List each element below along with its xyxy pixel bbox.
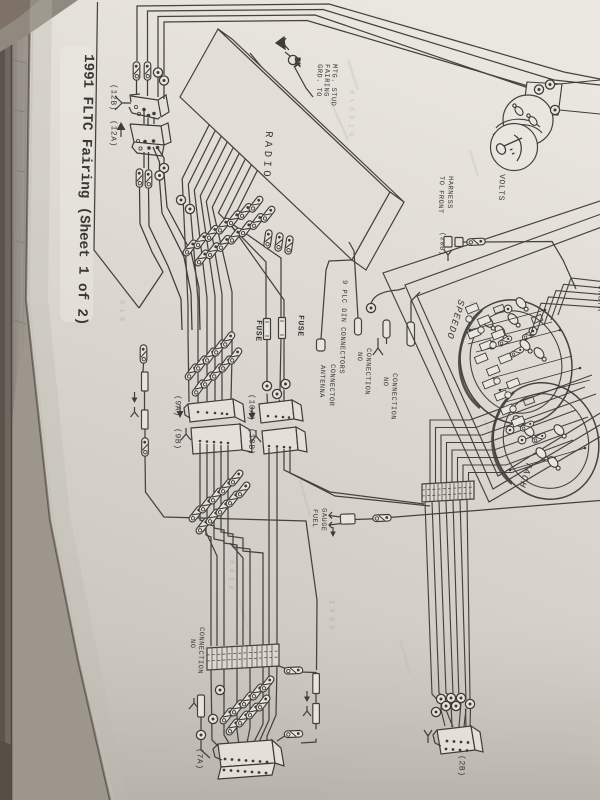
svg-text:FUSE: FUSE: [295, 315, 305, 337]
svg-text:MTG. STUD: MTG. STUD: [329, 64, 338, 107]
svg-text:CONNECTION: CONNECTION: [195, 627, 205, 674]
svg-text:NO: NO: [381, 377, 389, 387]
svg-text:RADIO: RADIO: [259, 131, 274, 181]
svg-text:ANTENNA: ANTENNA: [317, 365, 326, 398]
svg-text:(10B): (10B): [246, 428, 256, 455]
svg-text:BK: BK: [292, 57, 300, 67]
svg-text:8 1 8: 8 1 8: [117, 300, 125, 321]
svg-text:CONNECTOR: CONNECTOR: [327, 364, 336, 407]
svg-text:CONNECTION: CONNECTION: [388, 373, 398, 420]
svg-text:VOLTS: VOLTS: [496, 174, 506, 201]
svg-text:INSTR: INSTR: [595, 285, 600, 312]
svg-text:TO FRONT: TO FRONT: [436, 176, 445, 214]
svg-text:8 1 8 8 1 8: 8 1 8 8 1 8: [346, 90, 355, 136]
svg-text:(10A): (10A): [246, 394, 256, 421]
svg-text:8 8 1 8: 8 8 1 8: [226, 560, 235, 590]
svg-text:NO: NO: [188, 639, 196, 649]
svg-text:(12A): (12A): [108, 120, 118, 147]
svg-text:9 PLC DIN CONNECTORS: 9 PLC DIN CONNECTORS: [337, 280, 348, 374]
svg-text:FUSE: FUSE: [253, 320, 263, 342]
svg-text:(2B): (2B): [456, 755, 466, 777]
svg-text:(12B): (12B): [108, 84, 118, 111]
svg-text:GAUGE: GAUGE: [319, 508, 328, 532]
svg-text:1 8 8 8: 1 8 8 8: [326, 600, 335, 630]
svg-text:FUEL: FUEL: [310, 509, 319, 528]
svg-text:CONNECTION: CONNECTION: [362, 348, 372, 395]
svg-text:HARNESS: HARNESS: [445, 176, 454, 209]
svg-text:NO: NO: [355, 352, 363, 362]
svg-text:(9B): (9B): [172, 428, 182, 450]
svg-text:(7A): (7A): [194, 748, 204, 770]
svg-text:(9A): (9A): [172, 395, 182, 417]
